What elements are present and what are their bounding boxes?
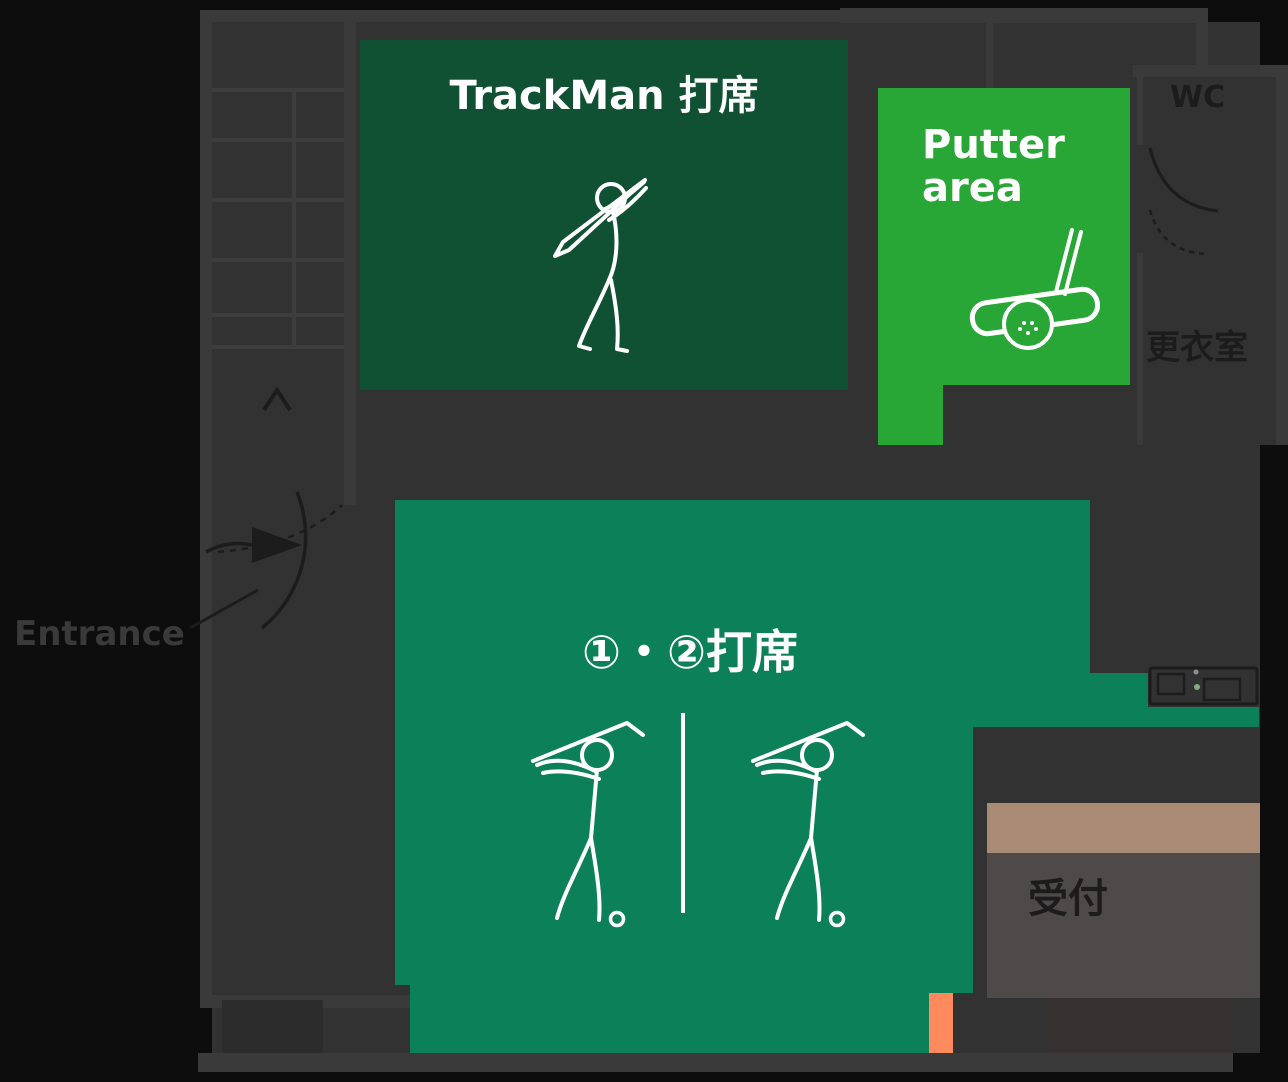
fixture-block-bottom-left [222, 1000, 323, 1053]
wall-putter-stub [986, 23, 993, 88]
wall-right [1276, 65, 1288, 445]
room-trackman-label: TrackMan 打席 [360, 75, 848, 118]
golfer-followthrough-icon [545, 168, 675, 358]
step-area-bottom-right [1049, 999, 1233, 1053]
bay-divider-line [681, 713, 685, 913]
golfer-backswing-icon [725, 713, 875, 928]
entrance-label: Entrance [14, 614, 185, 654]
orange-marker-block [929, 993, 953, 1053]
wall-top-b [840, 8, 1208, 23]
wc-label: WC [1170, 80, 1225, 115]
putter-and-ball-icon [960, 228, 1110, 358]
reception-counter [987, 803, 1260, 853]
room-putter-label-line1: Putter [922, 124, 1065, 167]
wall-corridor-lower [1137, 253, 1143, 445]
wall-top-a [200, 10, 878, 22]
room-bays-label: ①・②打席 [395, 628, 985, 678]
golfer-backswing-icon [505, 713, 655, 928]
wall-top-c [1133, 65, 1288, 77]
room-trackman: TrackMan 打席 [360, 40, 848, 390]
room-putter-label: Putter area [922, 124, 1065, 210]
room-putter-label-line2: area [922, 167, 1065, 210]
wall-bottom [198, 1053, 1233, 1072]
wall-left [200, 10, 212, 1008]
wall-corridor-upper [1137, 77, 1143, 145]
changing-room-label: 更衣室 [1146, 320, 1248, 369]
floorplan-canvas: { "colors": { "outside_bg": "#0d0d0d", "… [0, 0, 1288, 1082]
reception-label: 受付 [1028, 866, 1108, 924]
wall-stair-shaft [344, 22, 356, 505]
right-corridor-interior [1137, 65, 1288, 445]
